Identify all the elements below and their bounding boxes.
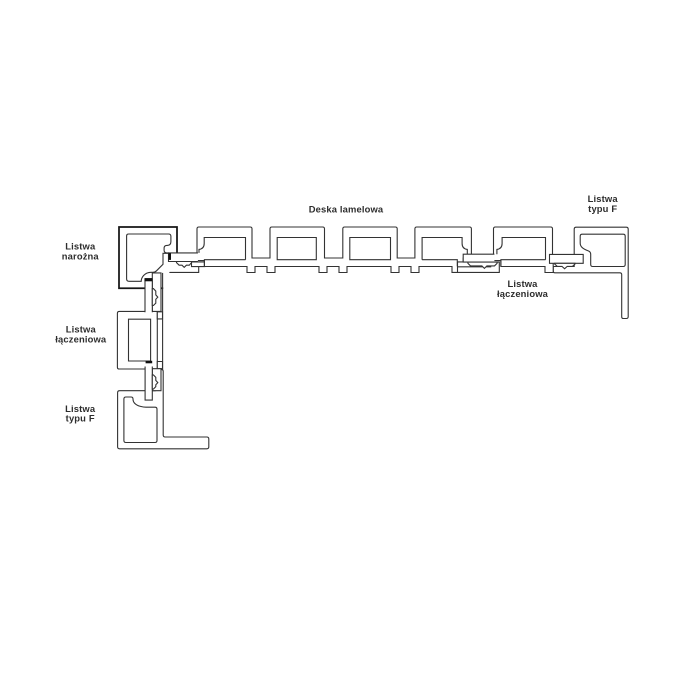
svg-text:typu F: typu F <box>66 413 95 424</box>
svg-text:narożna: narożna <box>62 251 100 262</box>
svg-text:łączeniowa: łączeniowa <box>497 288 549 299</box>
svg-text:typu F: typu F <box>588 203 617 214</box>
svg-text:Deska lamelowa: Deska lamelowa <box>309 204 384 215</box>
svg-text:łączeniowa: łączeniowa <box>55 333 107 344</box>
